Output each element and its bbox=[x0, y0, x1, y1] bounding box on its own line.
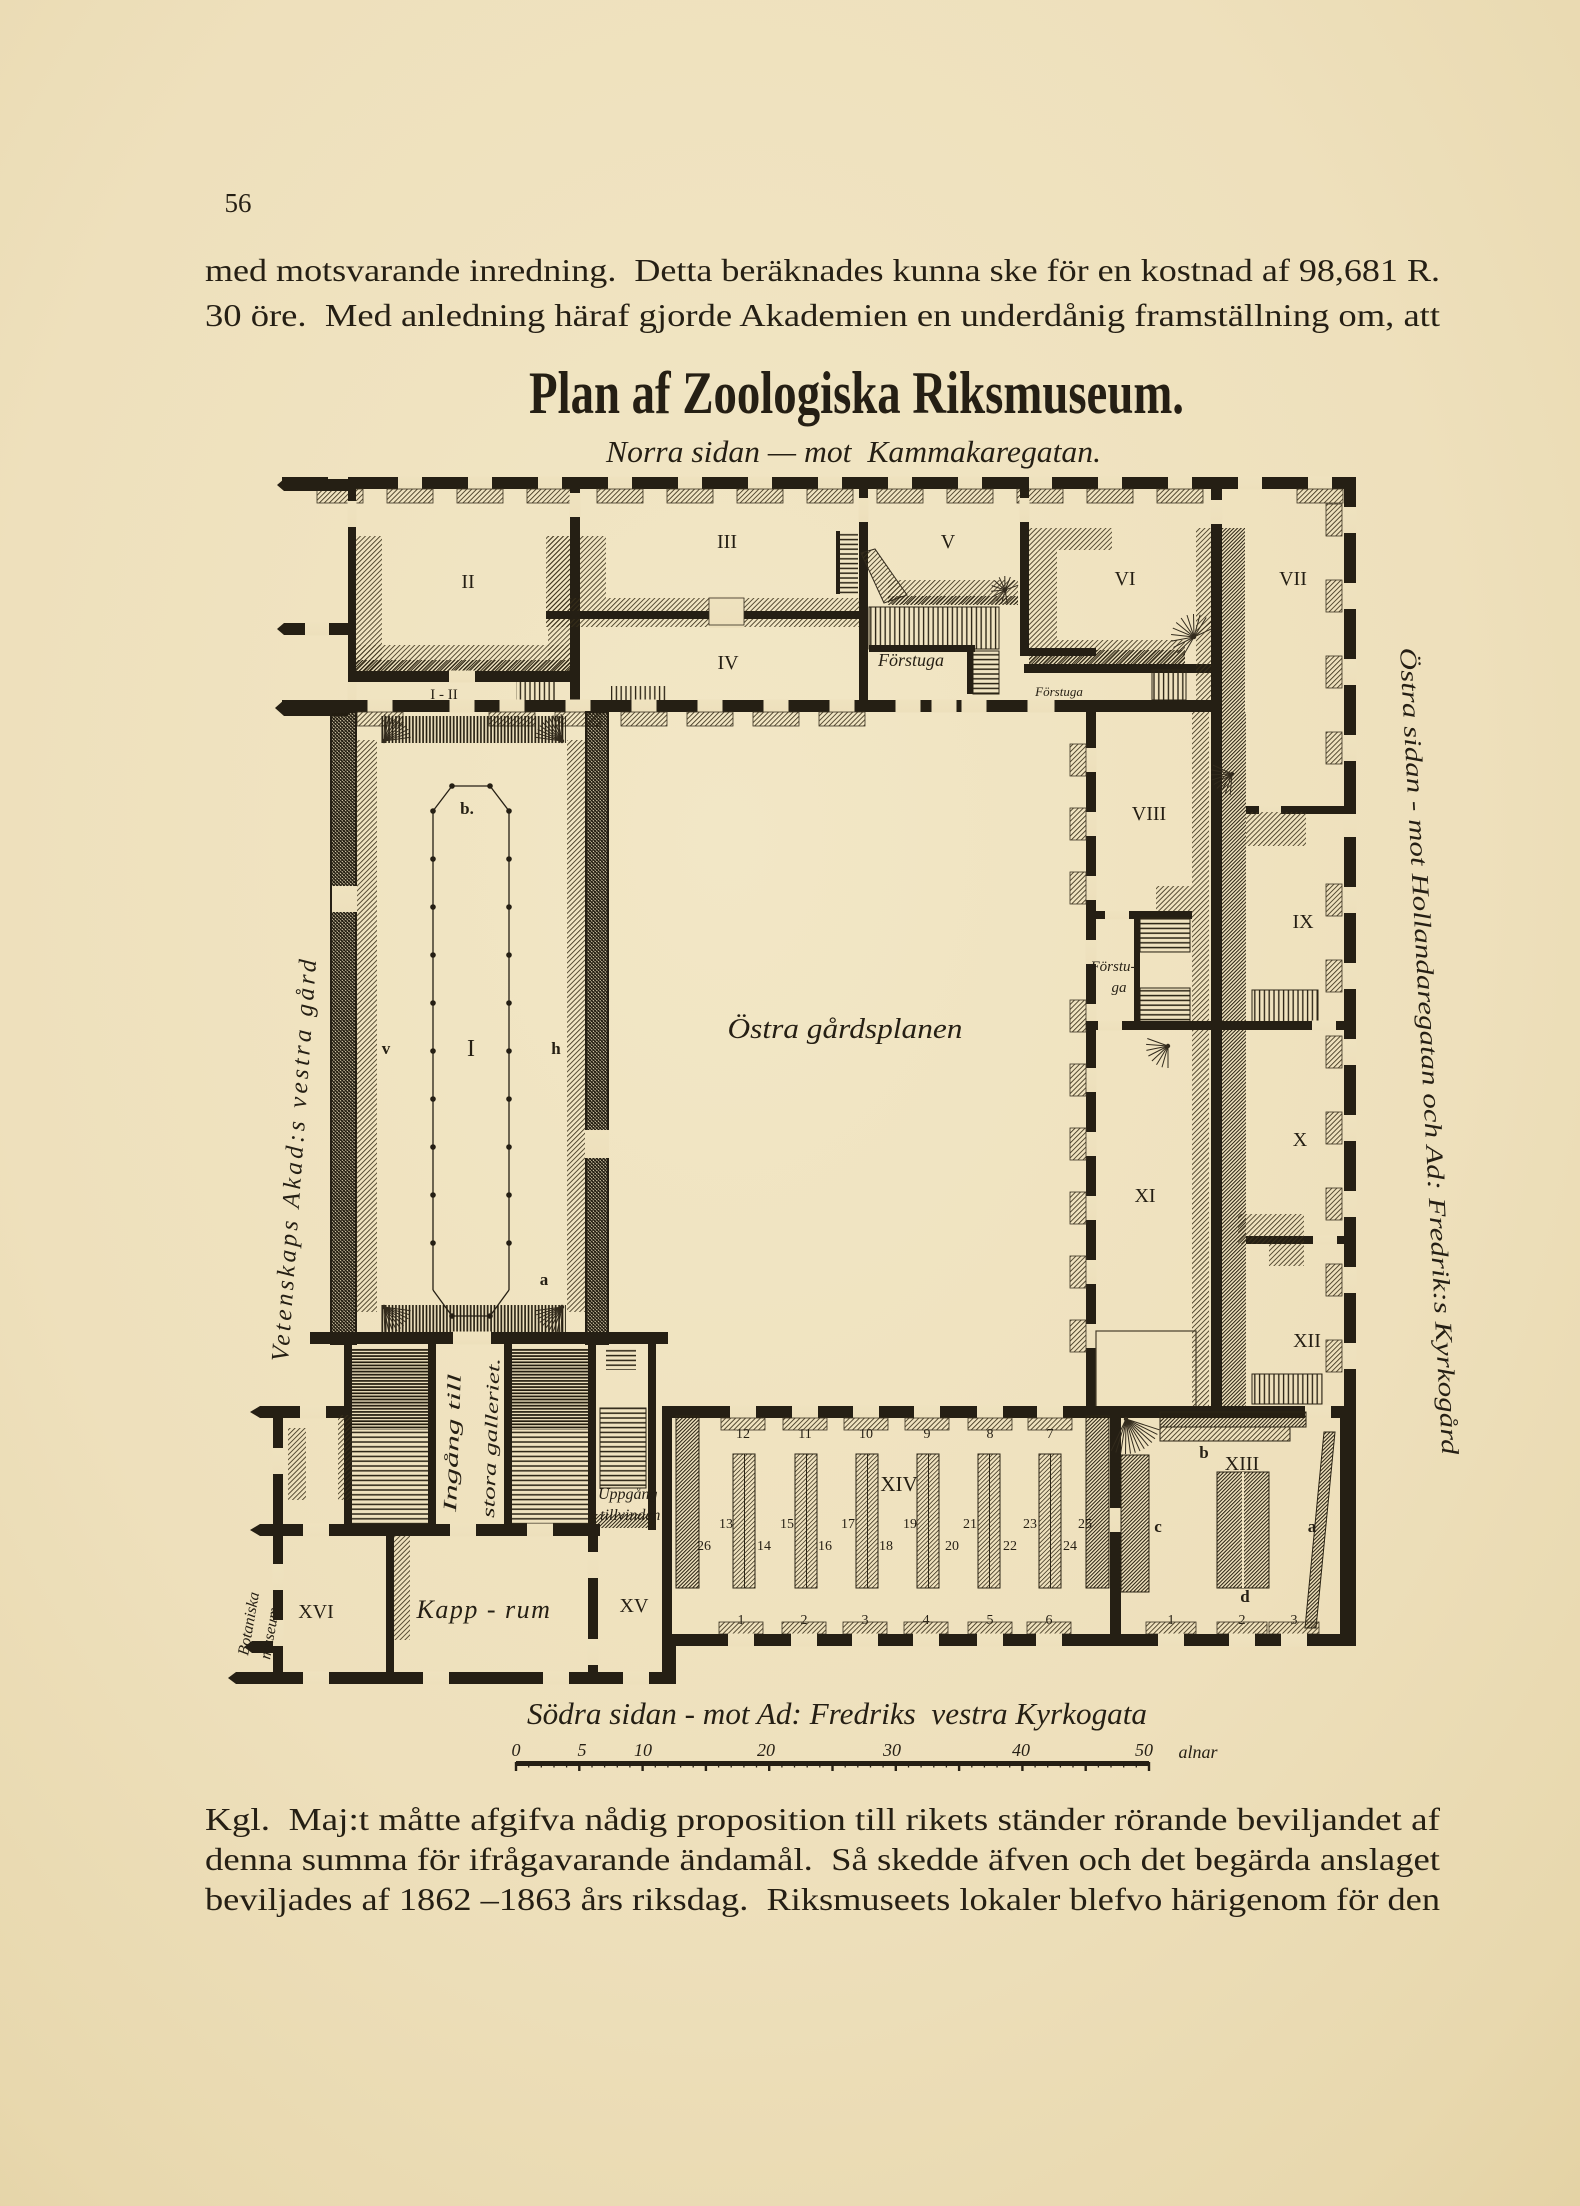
svg-text:Kapp - rum: Kapp - rum bbox=[416, 1595, 552, 1624]
svg-text:Plan af Zoologiska Riksmuseum.: Plan af Zoologiska Riksmuseum. bbox=[529, 360, 1184, 426]
svg-text:26: 26 bbox=[697, 1539, 711, 1554]
svg-text:10: 10 bbox=[634, 1740, 652, 1760]
svg-text:20: 20 bbox=[757, 1740, 775, 1760]
svg-text:25: 25 bbox=[1078, 1517, 1092, 1532]
svg-text:med motsvarande inredning. De: med motsvarande inredning. Detta beräkna… bbox=[205, 252, 1440, 288]
svg-text:9: 9 bbox=[924, 1427, 931, 1442]
svg-text:Uppgång: Uppgång bbox=[598, 1486, 658, 1503]
svg-text:IV: IV bbox=[717, 652, 739, 674]
svg-text:denna summa för ifrågavarande: denna summa för ifrågavarande ändamål. S… bbox=[205, 1841, 1440, 1877]
svg-text:20: 20 bbox=[945, 1539, 959, 1554]
svg-text:23: 23 bbox=[1023, 1517, 1037, 1532]
svg-text:XVI: XVI bbox=[298, 1601, 334, 1623]
svg-text:VIII: VIII bbox=[1132, 803, 1166, 825]
svg-text:h: h bbox=[551, 1039, 561, 1058]
svg-text:18: 18 bbox=[879, 1539, 893, 1554]
svg-text:XIV: XIV bbox=[880, 1472, 917, 1496]
svg-text:XV: XV bbox=[620, 1595, 649, 1617]
svg-text:22: 22 bbox=[1003, 1539, 1017, 1554]
svg-text:56: 56 bbox=[225, 188, 252, 218]
svg-text:III: III bbox=[717, 531, 737, 553]
svg-text:XI: XI bbox=[1134, 1185, 1155, 1207]
svg-text:19: 19 bbox=[903, 1517, 917, 1532]
svg-text:21: 21 bbox=[963, 1517, 977, 1532]
svg-text:17: 17 bbox=[841, 1517, 855, 1532]
svg-text:30 öre. Med anledning häraf g: 30 öre. Med anledning häraf gjorde Akade… bbox=[205, 297, 1440, 333]
svg-text:7: 7 bbox=[1047, 1427, 1054, 1442]
svg-text:v: v bbox=[382, 1039, 391, 1058]
svg-text:a: a bbox=[1308, 1517, 1317, 1536]
svg-text:15: 15 bbox=[780, 1517, 794, 1532]
svg-text:alnar: alnar bbox=[1178, 1742, 1218, 1762]
svg-text:Södra sidan - mot Ad: Fredriks: Södra sidan - mot Ad: Fredriks vestra Ky… bbox=[527, 1696, 1147, 1731]
svg-text:13: 13 bbox=[719, 1517, 733, 1532]
svg-text:11: 11 bbox=[798, 1427, 811, 1442]
svg-text:V: V bbox=[941, 531, 956, 553]
svg-text:50: 50 bbox=[1135, 1740, 1153, 1760]
svg-text:24: 24 bbox=[1063, 1539, 1077, 1554]
svg-text:40: 40 bbox=[1012, 1740, 1030, 1760]
svg-text:XII: XII bbox=[1293, 1330, 1321, 1352]
svg-text:8: 8 bbox=[987, 1427, 994, 1442]
svg-text:5: 5 bbox=[578, 1740, 587, 1760]
svg-text:ga: ga bbox=[1112, 980, 1127, 996]
svg-text:Kgl. Maj:t måtte afgifva nådi: Kgl. Maj:t måtte afgifva nådig propositi… bbox=[205, 1801, 1440, 1837]
svg-text:tillvinden: tillvinden bbox=[600, 1507, 660, 1524]
svg-text:d: d bbox=[1240, 1587, 1250, 1606]
svg-text:Förstuga: Förstuga bbox=[1034, 684, 1083, 699]
svg-text:12: 12 bbox=[736, 1427, 750, 1442]
svg-text:Förstuga: Förstuga bbox=[877, 650, 944, 670]
svg-text:Förstu-: Förstu- bbox=[1090, 959, 1136, 975]
svg-text:0: 0 bbox=[512, 1740, 521, 1760]
svg-text:Östra gårdsplanen: Östra gårdsplanen bbox=[728, 1014, 963, 1045]
svg-text:b: b bbox=[1199, 1443, 1208, 1462]
svg-text:I: I bbox=[467, 1036, 475, 1062]
svg-text:a: a bbox=[540, 1270, 549, 1289]
svg-text:beviljades af 1862 –1863 års r: beviljades af 1862 –1863 års riksdag. Ri… bbox=[205, 1881, 1440, 1917]
svg-text:c: c bbox=[1154, 1517, 1162, 1536]
svg-text:10: 10 bbox=[859, 1427, 873, 1442]
svg-text:30: 30 bbox=[882, 1740, 901, 1760]
svg-text:b.: b. bbox=[460, 799, 474, 818]
svg-text:X: X bbox=[1293, 1129, 1308, 1151]
svg-text:IX: IX bbox=[1292, 911, 1314, 933]
svg-text:14: 14 bbox=[757, 1539, 771, 1554]
svg-text:Norra sidan — mot Kammakarega: Norra sidan — mot Kammakaregatan. bbox=[605, 434, 1101, 469]
svg-text:II: II bbox=[461, 571, 474, 593]
svg-text:VII: VII bbox=[1279, 568, 1307, 590]
svg-text:16: 16 bbox=[818, 1539, 832, 1554]
svg-text:VI: VI bbox=[1114, 568, 1135, 590]
